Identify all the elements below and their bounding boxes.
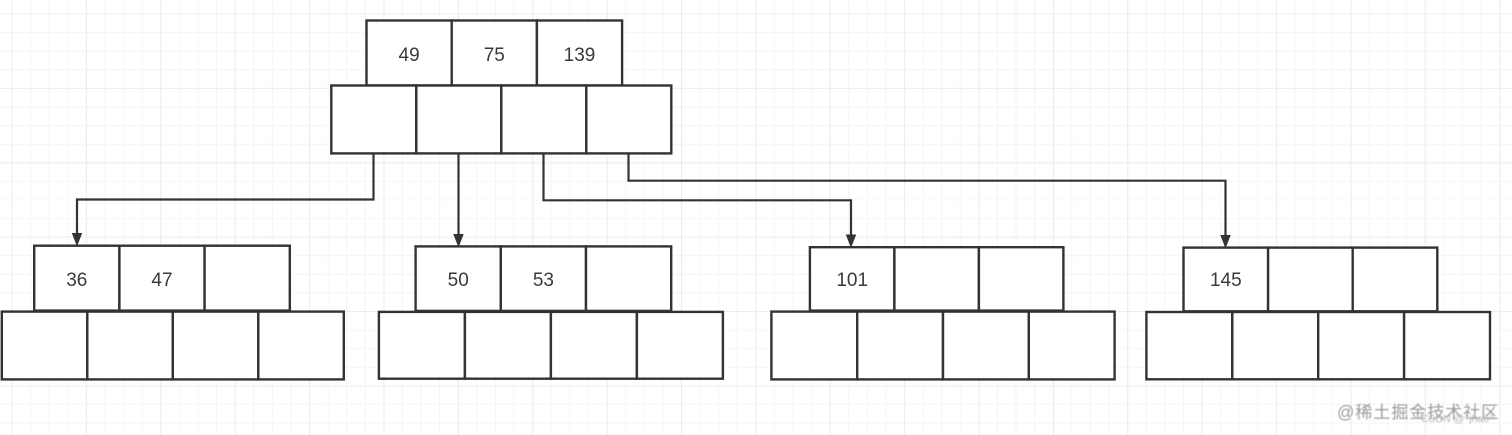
svg-text:75: 75: [484, 45, 505, 66]
svg-text:49: 49: [399, 45, 420, 66]
svg-text:36: 36: [66, 270, 87, 291]
svg-text:145: 145: [1210, 270, 1242, 291]
svg-text:47: 47: [151, 270, 172, 291]
svg-text:53: 53: [533, 270, 554, 291]
svg-text:101: 101: [836, 270, 868, 291]
svg-text:139: 139: [564, 45, 596, 66]
svg-text:50: 50: [448, 270, 469, 291]
